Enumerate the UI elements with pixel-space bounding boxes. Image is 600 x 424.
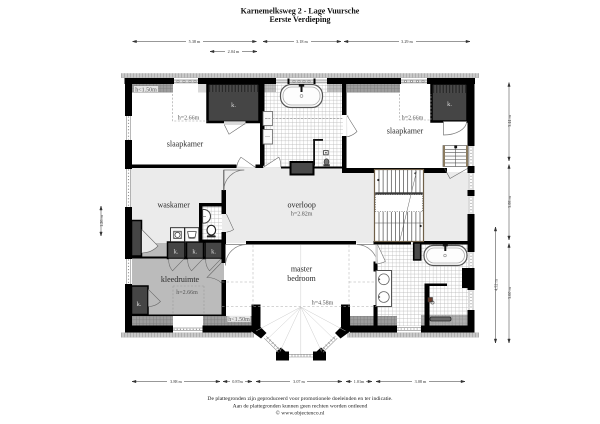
svg-text:3.08 m: 3.08 m bbox=[415, 379, 427, 384]
svg-text:slaapkamer: slaapkamer bbox=[387, 127, 424, 136]
svg-text:k.: k. bbox=[447, 101, 452, 108]
svg-text:k.: k. bbox=[137, 301, 142, 308]
svg-text:k.: k. bbox=[174, 249, 179, 256]
svg-text:h<1.50m: h<1.50m bbox=[135, 87, 157, 93]
svg-text:4.52 m: 4.52 m bbox=[494, 278, 499, 290]
svg-text:h=2.66m: h=2.66m bbox=[176, 290, 198, 296]
svg-text:overloop: overloop bbox=[287, 201, 315, 210]
svg-text:3.29 m: 3.29 m bbox=[401, 39, 413, 44]
svg-text:bedroom: bedroom bbox=[287, 274, 316, 283]
svg-text:slaapkamer: slaapkamer bbox=[167, 140, 204, 149]
svg-text:master: master bbox=[291, 265, 313, 274]
svg-text:De plattegronden zijn geproduc: De plattegronden zijn geproduceerd voor … bbox=[207, 396, 393, 402]
svg-text:5.38 m: 5.38 m bbox=[189, 39, 201, 44]
svg-text:3.18 m: 3.18 m bbox=[296, 39, 308, 44]
svg-text:3.44 m: 3.44 m bbox=[507, 114, 512, 126]
svg-text:kleedruimte: kleedruimte bbox=[161, 275, 200, 284]
svg-text:0.87m: 0.87m bbox=[232, 379, 243, 384]
svg-text:waskamer: waskamer bbox=[157, 201, 190, 210]
svg-text:1.01m: 1.01m bbox=[354, 379, 365, 384]
svg-text:h=4.58m: h=4.58m bbox=[312, 301, 334, 307]
svg-text:k.: k. bbox=[231, 102, 236, 109]
svg-text:3.08 m: 3.08 m bbox=[507, 195, 512, 207]
svg-text:Eerste Verdieping: Eerste Verdieping bbox=[269, 15, 330, 24]
svg-text:Aan de plattegronden kunnen ge: Aan de plattegronden kunnen geen rechten… bbox=[233, 403, 368, 409]
svg-text:1.26 m: 1.26 m bbox=[99, 214, 104, 226]
svg-text:h=2.66m: h=2.66m bbox=[178, 116, 200, 122]
svg-text:h=2.82m: h=2.82m bbox=[291, 212, 313, 218]
svg-text:2.04 m: 2.04 m bbox=[228, 49, 240, 54]
svg-text:h<1.50m: h<1.50m bbox=[228, 317, 250, 323]
svg-text:3.88 m: 3.88 m bbox=[170, 379, 182, 384]
svg-text:3.07 m: 3.07 m bbox=[293, 379, 305, 384]
svg-text:k.: k. bbox=[192, 249, 197, 256]
svg-text:h=2.66m: h=2.66m bbox=[402, 116, 424, 122]
svg-text:k.: k. bbox=[211, 249, 216, 256]
svg-text:© www.objectenco.nl: © www.objectenco.nl bbox=[276, 410, 325, 417]
svg-text:3.60 m: 3.60 m bbox=[507, 286, 512, 298]
